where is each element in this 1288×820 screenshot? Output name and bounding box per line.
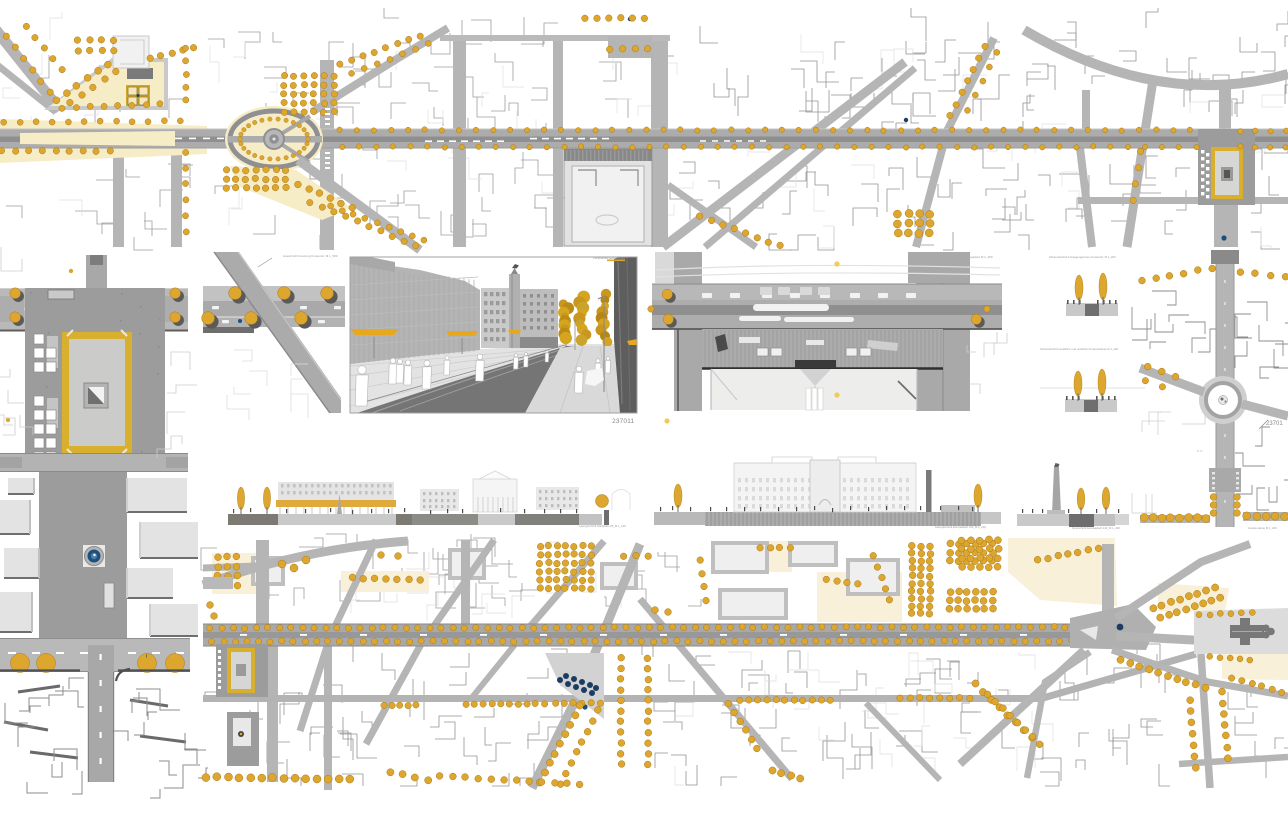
svg-text:Ausschnitt Kreuzung Knotenstr.: Ausschnitt Kreuzung Knotenstr. M 1_500: [283, 254, 338, 258]
svg-text:Laengsschnitt Stadtplatz 06_M: Laengsschnitt Stadtplatz 06_M 1_200: [579, 524, 626, 528]
svg-text:Gustav-Heine M 1_200: Gustav-Heine M 1_200: [1248, 526, 1277, 530]
svg-text:Querschnitt Europaplatz 132_M: Querschnitt Europaplatz 132_M 1_200: [1072, 526, 1120, 530]
svg-text:Schemaschnitt Fussgaengerzone: Schemaschnitt Fussgaengerzone Knotenstr.…: [1049, 255, 1116, 259]
svg-text:Perspektive Europaplatz: Perspektive Europaplatz: [593, 256, 626, 260]
svg-text:B.IV: B.IV: [1197, 449, 1203, 453]
svg-text:237011: 237011: [612, 418, 634, 425]
svg-text:23701: 23701: [1266, 421, 1283, 427]
svg-text:Laengsschnitt Europaplatz 132_: Laengsschnitt Europaplatz 132_M 1_200: [935, 525, 986, 529]
svg-text:Schemaschnitt westliche und oe: Schemaschnitt westliche und oestliche Kn…: [1040, 347, 1119, 351]
